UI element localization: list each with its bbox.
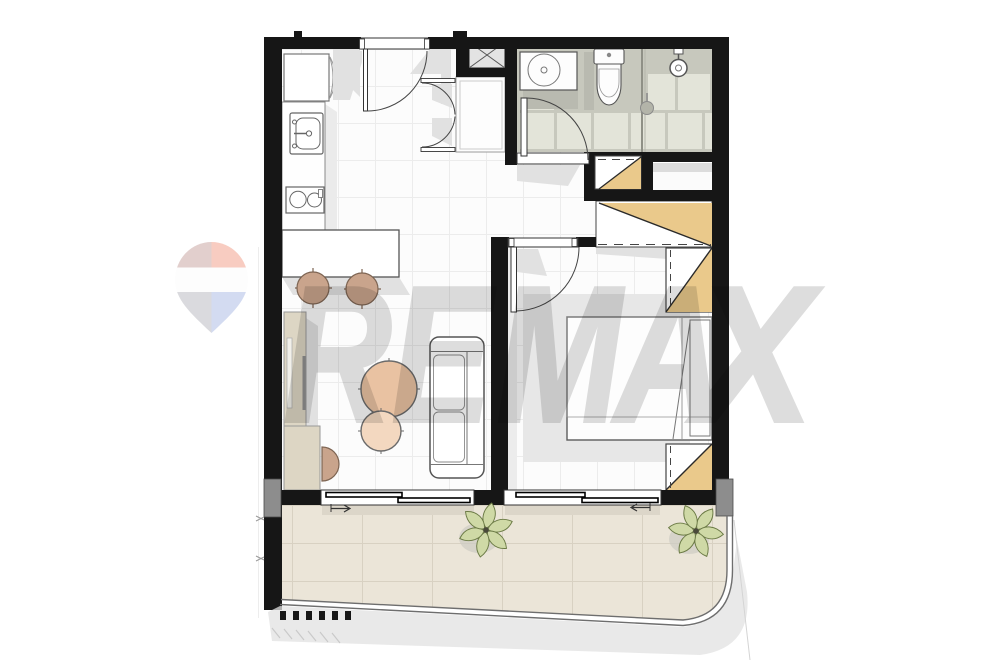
svg-text:X: X [687, 247, 822, 463]
svg-text:REMA: REMA [284, 246, 723, 462]
